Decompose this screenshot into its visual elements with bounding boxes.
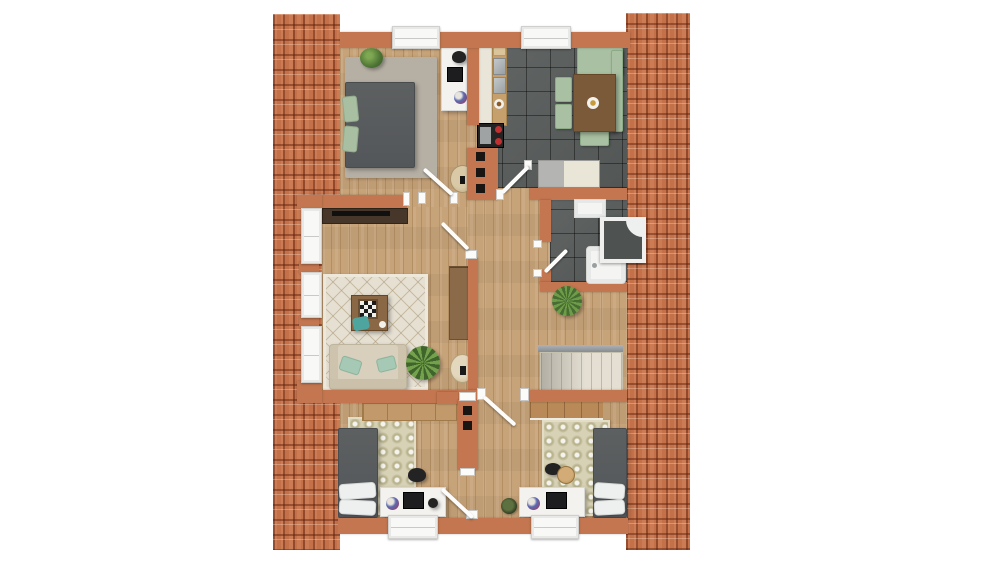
window-kitchen (521, 26, 571, 49)
living-plant (406, 346, 440, 380)
door-frame (418, 192, 426, 204)
window-dormer (301, 272, 322, 318)
stair-railing (538, 345, 623, 352)
door-frame (459, 392, 476, 401)
bath-sink (574, 199, 606, 218)
wall-bedroom-kitchen (467, 40, 479, 125)
bathtub-drain (592, 263, 597, 268)
wall-niche (476, 184, 485, 193)
bed-pillow (338, 482, 376, 501)
wardrobe (449, 266, 470, 340)
wall-niche (476, 152, 485, 161)
bed-pillow (342, 125, 359, 152)
table-cup (379, 321, 386, 328)
desk-chair (452, 51, 466, 63)
wall-niche (463, 421, 472, 430)
stair-lower-flight (530, 402, 603, 420)
desk-chair-arm (428, 498, 438, 508)
dining-chair (555, 77, 572, 102)
fridge (538, 160, 600, 188)
hall-plant (552, 286, 582, 316)
door-frame (465, 250, 477, 259)
table-plate (587, 97, 599, 109)
potted-plant (501, 498, 517, 514)
desk-globe (527, 497, 540, 510)
kitchen-sink (493, 58, 506, 75)
stove-burner (495, 138, 502, 145)
staircase (540, 352, 623, 392)
door-frame (520, 388, 529, 401)
laptop (447, 67, 463, 82)
dining-chair (580, 130, 609, 146)
desk-globe (454, 91, 467, 104)
kitchen-counter-cabinet (478, 46, 492, 125)
bed-pillow (593, 482, 625, 500)
dormer-corner-bottom (297, 381, 322, 403)
plate (494, 99, 504, 109)
bed-pillow (339, 499, 377, 516)
window-dormer (301, 326, 322, 383)
wall-bath-left-upper (540, 200, 551, 242)
wall-niche (476, 168, 485, 177)
kitchen-sink (493, 77, 506, 94)
wall-exterior-bottom (338, 518, 628, 534)
wall-living-top (310, 195, 407, 208)
wooden-stool (557, 466, 575, 484)
window-dormer (301, 208, 322, 264)
window-bottom-left (388, 515, 438, 539)
door-frame (403, 192, 410, 206)
stove-burner (495, 126, 502, 133)
plant-top-bedroom (360, 48, 383, 68)
wall-exterior-top (340, 32, 630, 48)
roof-strip-right (626, 13, 690, 550)
bed-pillow (342, 95, 360, 122)
wall-living-right (468, 258, 478, 390)
window-bottom-right (531, 515, 579, 539)
tv (332, 211, 390, 216)
dormer-corner-top (297, 195, 322, 208)
bed-pillow (594, 499, 626, 516)
master-bed (345, 82, 415, 168)
door-frame (460, 468, 475, 476)
door-frame (533, 269, 542, 277)
side-table-item (460, 366, 466, 375)
window-top-bedroom (392, 26, 440, 49)
stove-tray (480, 127, 491, 144)
wall-bedroom-left-top (437, 392, 458, 404)
hall-table-item (460, 176, 465, 184)
dining-chair (555, 104, 572, 129)
door-frame (533, 240, 542, 248)
desk-monitor (546, 492, 567, 509)
cutting-board (493, 47, 506, 56)
wardrobe-band (362, 403, 457, 421)
desk-globe (386, 497, 399, 510)
desk-chair (408, 468, 426, 482)
wall-niche (463, 406, 472, 415)
wall-stairs (530, 390, 627, 402)
desk-monitor (403, 492, 424, 509)
floor-plan-canvas (0, 0, 1000, 562)
